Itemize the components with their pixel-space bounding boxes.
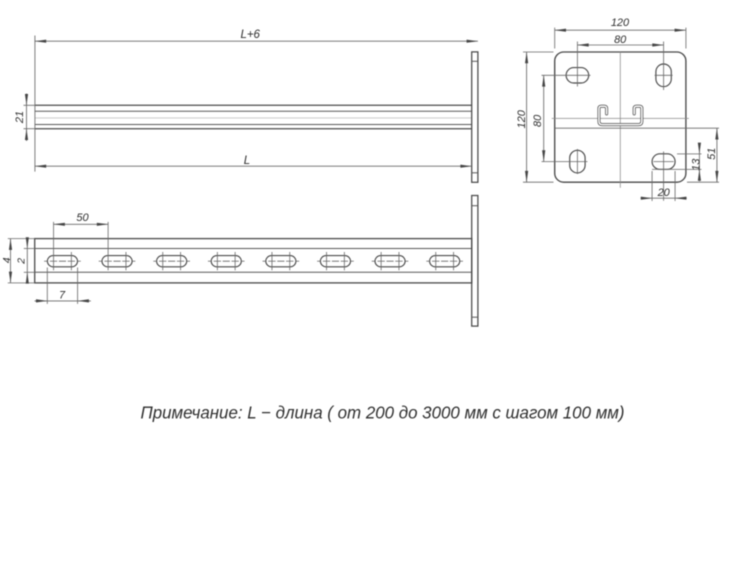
svg-text:13: 13 (691, 158, 703, 171)
svg-text:21: 21 (14, 111, 26, 124)
svg-text:Примечание: L − длина ( от 200: Примечание: L − длина ( от 200 до 3000 м… (141, 403, 625, 423)
svg-text:120: 120 (611, 17, 630, 29)
svg-text:80: 80 (614, 34, 627, 46)
svg-text:51: 51 (706, 148, 718, 160)
svg-text:2: 2 (16, 258, 28, 265)
svg-text:7: 7 (59, 290, 66, 302)
svg-text:120: 120 (516, 109, 528, 128)
svg-text:80: 80 (532, 114, 544, 127)
svg-text:4: 4 (1, 257, 13, 263)
svg-text:L+6: L+6 (240, 29, 260, 41)
svg-text:L: L (244, 155, 250, 167)
svg-text:20: 20 (657, 187, 671, 199)
svg-text:50: 50 (76, 212, 89, 224)
